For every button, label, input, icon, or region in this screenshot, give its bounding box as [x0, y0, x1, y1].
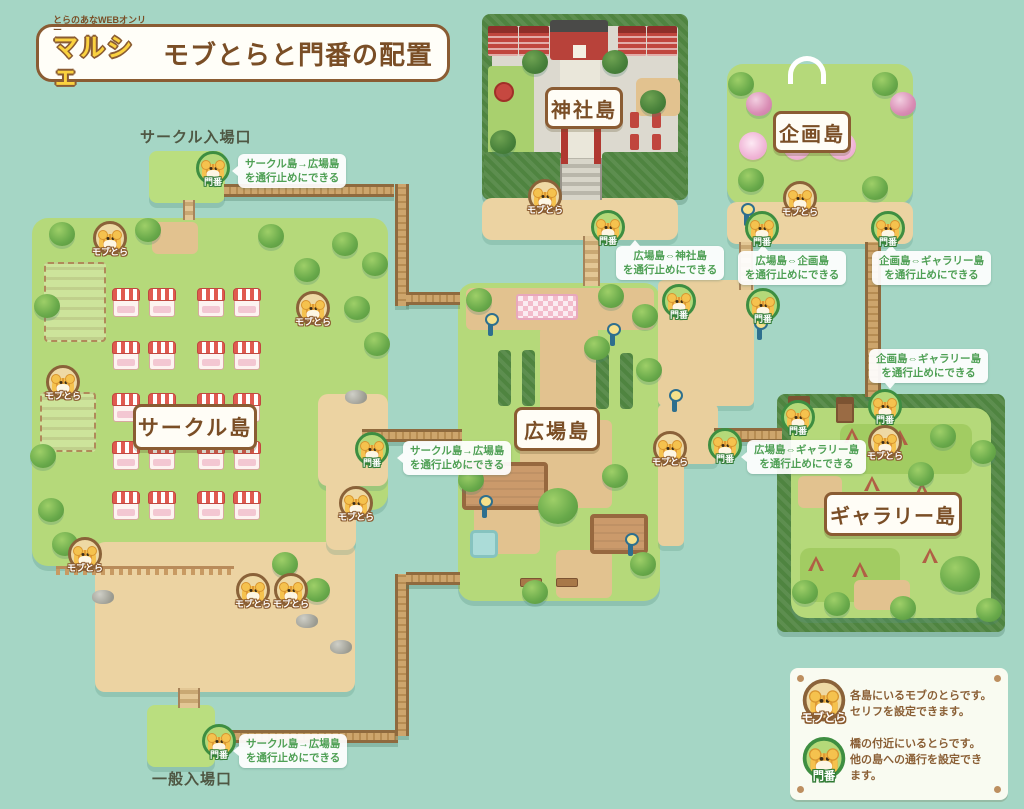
tree [824, 592, 850, 616]
lamp-icon [672, 396, 677, 412]
gatekeeper-tag: 門番 [210, 751, 228, 760]
hedge [602, 152, 686, 198]
market-booth [113, 343, 139, 370]
gatekeeper-tag: 門番 [204, 178, 222, 187]
market-booth [198, 343, 224, 370]
gate-note-route: 広場島⇔企画島 [745, 254, 839, 268]
island-label-circle: サークル島 [133, 404, 257, 450]
event-name: とらのあなWEBオンリー [53, 16, 151, 36]
gatekeeper-tag: 門番 [670, 311, 688, 320]
market-booth [149, 343, 175, 370]
rock [345, 390, 367, 404]
tree [364, 332, 390, 356]
mob-tiger-tag: モブとら [801, 713, 846, 724]
hedge [596, 353, 609, 409]
legend-gate-line2: 他の島への通行を設定でき [850, 752, 982, 768]
gatekeeper-tag: 門番 [879, 238, 897, 247]
gate-note-action: を通行止めにできる [410, 458, 504, 472]
parasol [494, 82, 514, 102]
legend-mob-line1: 各島にいるモブのとらです。 [850, 688, 992, 704]
gatekeeper-tag: 門番 [753, 238, 771, 247]
tree [738, 168, 764, 192]
lamp-icon [628, 540, 633, 556]
mob-tiger-icon[interactable]: モブとら [67, 537, 103, 573]
mob-tiger-icon[interactable]: モブとら [801, 679, 846, 724]
note-pointer [397, 453, 403, 463]
mob-tiger-icon[interactable]: モブとら [45, 365, 81, 401]
shed [836, 397, 854, 423]
gate-note-action: を通行止めにできる [876, 366, 981, 380]
gate-note-route: サークル島→広場島 [410, 444, 504, 458]
gate-note-route: サークル島→広場島 [246, 737, 340, 751]
gatekeeper-icon[interactable]: 門番 [803, 737, 846, 782]
flower-table [739, 132, 767, 160]
legend-mob-text: 各島にいるモブのとらです。 セリフを設定できます。 [850, 688, 992, 720]
gatekeeper-tag: 門番 [789, 427, 807, 436]
tree [632, 304, 658, 328]
note-pointer [232, 166, 238, 176]
gate-note-route: 広場島⇔神社島 [623, 249, 717, 263]
lamp-icon [488, 320, 493, 336]
gatekeeper-icon[interactable]: 門番 [662, 284, 696, 320]
tree [930, 424, 956, 448]
gatekeeper-icon[interactable]: 門番 [781, 400, 815, 436]
tree [636, 358, 662, 382]
gate-note-action: を通行止めにできる [754, 457, 859, 471]
gatekeeper-icon[interactable]: 門番 [591, 210, 625, 246]
sand-area [482, 198, 678, 240]
tree [728, 72, 754, 96]
flower-arch [788, 56, 826, 84]
mob-tiger-tag: モブとら [67, 564, 103, 573]
tree [792, 580, 818, 604]
marche-logo: マルシェ [53, 35, 151, 90]
pin-icon [994, 786, 1001, 793]
tree [640, 90, 666, 114]
gatekeeper-icon[interactable]: 門番 [745, 211, 779, 247]
pin-icon [994, 675, 1001, 682]
mob-tiger-tag: モブとら [782, 208, 818, 217]
gate-note: 企画島⇔ギャラリー島を通行止めにできる [872, 251, 991, 285]
pin-icon [797, 786, 804, 793]
island-label-kikaku: 企画島 [773, 111, 851, 153]
red-bench [630, 112, 639, 128]
tree [490, 130, 516, 154]
tree [49, 222, 75, 246]
gatekeeper-tag: 門番 [754, 315, 772, 324]
red-bench [652, 112, 661, 128]
gate-note: サークル島→広場島を通行止めにできる [239, 734, 347, 768]
market-booth [234, 493, 260, 520]
tree [584, 336, 610, 360]
rock [296, 614, 318, 628]
inner-path [556, 550, 612, 598]
shrine-building [488, 26, 518, 56]
market-booth [149, 290, 175, 317]
legend: 各島にいるモブのとらです。 セリフを設定できます。 橋の付近にいるとらです。 他… [790, 668, 1008, 800]
tree [908, 462, 934, 486]
shrine-building [647, 26, 677, 56]
rock [92, 590, 114, 604]
general-entrance-caption: 一般入場口 [152, 768, 232, 789]
lamp-icon [757, 324, 762, 340]
note-pointer [630, 240, 640, 246]
tree [872, 72, 898, 96]
bridge [406, 292, 460, 305]
mob-tiger-icon[interactable]: モブとら [867, 425, 903, 461]
hedge [522, 350, 535, 406]
tree [332, 232, 358, 256]
pond [470, 530, 498, 558]
tree [344, 296, 370, 320]
mob-tiger-icon[interactable]: モブとら [527, 179, 563, 215]
gatekeeper-icon[interactable]: 門番 [202, 724, 236, 760]
wooden-deck [590, 514, 648, 554]
stairs [178, 688, 200, 708]
gate-note-action: を通行止めにできる [245, 171, 339, 185]
gatekeeper-icon[interactable]: 門番 [708, 428, 742, 464]
mob-tiger-icon[interactable]: モブとら [338, 486, 374, 522]
market-booth [113, 290, 139, 317]
placement-map: とらのあなWEBオンリー マルシェ モブとらと門番の配置 サークル入場口 一般入… [0, 0, 1024, 809]
mob-tiger-tag: モブとら [92, 248, 128, 257]
tree [976, 598, 1002, 622]
bridge [395, 574, 409, 736]
mob-tiger-icon[interactable]: モブとら [92, 221, 128, 257]
legend-gate-line1: 橋の付近にいるとらです。 [850, 736, 982, 752]
market-booth [198, 493, 224, 520]
island-label-gallery: ギャラリー島 [824, 492, 962, 536]
tree [602, 464, 628, 488]
sand-path [658, 462, 684, 546]
mob-tiger-tag: モブとら [273, 600, 309, 609]
gate-note-route: 企画島⇔ギャラリー島 [879, 254, 984, 268]
mob-tiger-icon[interactable]: モブとら [782, 181, 818, 217]
gate-note: 広場島⇔企画島を通行止めにできる [738, 251, 846, 285]
stairs [183, 200, 195, 220]
market-booth [234, 343, 260, 370]
legend-gate-line3: ます。 [850, 768, 982, 784]
gatekeeper-icon[interactable]: 門番 [196, 151, 230, 187]
gate-note-action: を通行止めにできる [879, 268, 984, 282]
market-booth [113, 493, 139, 520]
gate-note: サークル島→広場島を通行止めにできる [403, 441, 511, 475]
tree [598, 284, 624, 308]
gate-note-route: 広場島⇔ギャラリー島 [754, 443, 859, 457]
mob-tiger-tag: モブとら [235, 600, 271, 609]
mob-tiger-icon[interactable]: モブとら [235, 573, 271, 609]
tree [135, 218, 161, 242]
page-title: モブとらと門番の配置 [163, 35, 433, 72]
stairs [560, 158, 602, 200]
mob-tiger-tag: モブとら [867, 452, 903, 461]
gatekeeper-tag: 門番 [363, 459, 381, 468]
tree [970, 440, 996, 464]
market-booth [149, 493, 175, 520]
tree [940, 556, 980, 592]
tree [602, 50, 628, 74]
red-bench [652, 134, 661, 150]
gate-note: 広場島⇔ギャラリー島を通行止めにできる [747, 440, 866, 474]
tree [294, 258, 320, 282]
red-bench [630, 134, 639, 150]
lamp-icon [482, 502, 487, 518]
bench [556, 578, 578, 587]
event-logo: とらのあなWEBオンリー マルシェ [53, 16, 151, 91]
market-booth [198, 290, 224, 317]
hedge [498, 350, 511, 406]
mob-tiger-icon[interactable]: モブとら [652, 431, 688, 467]
tree [466, 288, 492, 312]
gatekeeper-icon[interactable]: 門番 [746, 288, 780, 324]
mob-tiger-tag: モブとら [652, 458, 688, 467]
rock [330, 640, 352, 654]
tree [538, 488, 578, 524]
gate-note: 企画島⇔ギャラリー島を通行止めにできる [869, 349, 988, 383]
tree [30, 444, 56, 468]
crop-plot [40, 392, 96, 452]
mob-tiger-icon[interactable]: モブとら [273, 573, 309, 609]
tree [362, 252, 388, 276]
gate-note-action: を通行止めにできる [246, 751, 340, 765]
tree [630, 552, 656, 576]
mob-tiger-tag: モブとら [527, 206, 563, 215]
mob-tiger-icon[interactable]: モブとら [295, 291, 331, 327]
tree [34, 294, 60, 318]
island-label-plaza: 広場島 [514, 407, 600, 451]
title-banner: とらのあなWEBオンリー マルシェ モブとらと門番の配置 [36, 24, 450, 82]
tree [522, 580, 548, 604]
gatekeeper-tag: 門番 [813, 771, 836, 782]
shrine-hall [550, 20, 608, 60]
gatekeeper-tag: 門番 [876, 416, 894, 425]
gate-note: 広場島⇔神社島を通行止めにできる [616, 246, 724, 280]
tree [746, 92, 772, 116]
gate-note: サークル島→広場島を通行止めにできる [238, 154, 346, 188]
gate-note-route: 企画島⇔ギャラリー島 [876, 352, 981, 366]
mob-tiger-tag: モブとら [45, 392, 81, 401]
gatekeeper-tag: 門番 [716, 455, 734, 464]
gate-note-route: サークル島→広場島 [245, 157, 339, 171]
tree [862, 176, 888, 200]
mob-tiger-tag: モブとら [295, 318, 331, 327]
event-stage [516, 294, 578, 320]
gate-note-action: を通行止めにできる [745, 268, 839, 282]
gatekeeper-icon[interactable]: 門番 [355, 432, 389, 468]
gatekeeper-tag: 門番 [599, 237, 617, 246]
tree [890, 92, 916, 116]
gate-note-action: を通行止めにできる [623, 263, 717, 277]
island-label-shrine: 神社島 [545, 87, 623, 129]
bridge [395, 184, 409, 306]
lamp-icon [610, 330, 615, 346]
tree [258, 224, 284, 248]
mob-tiger-tag: モブとら [338, 513, 374, 522]
legend-gate-text: 橋の付近にいるとらです。 他の島への通行を設定でき ます。 [850, 736, 982, 784]
tree [38, 498, 64, 522]
bridge [406, 572, 460, 585]
legend-mob-line2: セリフを設定できます。 [850, 704, 992, 720]
tree [522, 50, 548, 74]
market-booth [234, 290, 260, 317]
circle-entrance-caption: サークル入場口 [140, 126, 252, 147]
gatekeeper-icon[interactable]: 門番 [871, 211, 905, 247]
gatekeeper-icon[interactable]: 門番 [868, 389, 902, 425]
hedge [620, 353, 633, 409]
tree [890, 596, 916, 620]
